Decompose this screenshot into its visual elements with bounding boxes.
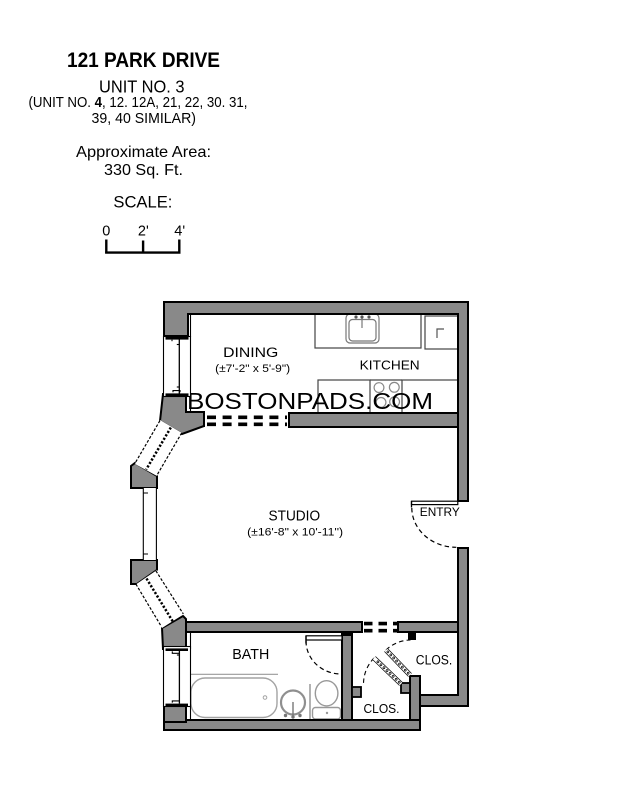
svg-text:Approximate Area:: Approximate Area: [76, 144, 211, 161]
svg-text:2': 2' [138, 224, 149, 240]
svg-text:(UNIT NO. 4, 12. 12A, 21, 22,: (UNIT NO. 4, 12. 12A, 21, 22, 30. 31, [29, 95, 248, 111]
svg-text:STUDIO: STUDIO [269, 509, 321, 525]
svg-text:CLOS.: CLOS. [364, 701, 400, 716]
svg-text:0: 0 [102, 224, 110, 240]
svg-text:ENTRY: ENTRY [420, 507, 460, 519]
svg-text:BOSTONPADS.COM: BOSTONPADS.COM [187, 388, 433, 414]
svg-text:39, 40 SIMILAR): 39, 40 SIMILAR) [92, 111, 197, 127]
svg-text:(±7'-2" x 5'-9"): (±7'-2" x 5'-9") [215, 363, 290, 375]
svg-text:(±16'-8" x 10'-11''): (±16'-8" x 10'-11'') [247, 527, 343, 539]
svg-text:DINING: DINING [223, 345, 278, 360]
svg-text:121 PARK DRIVE: 121 PARK DRIVE [67, 49, 220, 72]
svg-text:UNIT NO. 3: UNIT NO. 3 [99, 77, 185, 97]
svg-text:BATH: BATH [232, 647, 269, 663]
svg-text:4': 4' [174, 224, 185, 240]
svg-text:SCALE:: SCALE: [113, 193, 172, 212]
svg-text:330 Sq. Ft.: 330 Sq. Ft. [104, 162, 183, 179]
svg-text:CLOS.: CLOS. [416, 653, 453, 668]
svg-text:KITCHEN: KITCHEN [360, 358, 420, 373]
